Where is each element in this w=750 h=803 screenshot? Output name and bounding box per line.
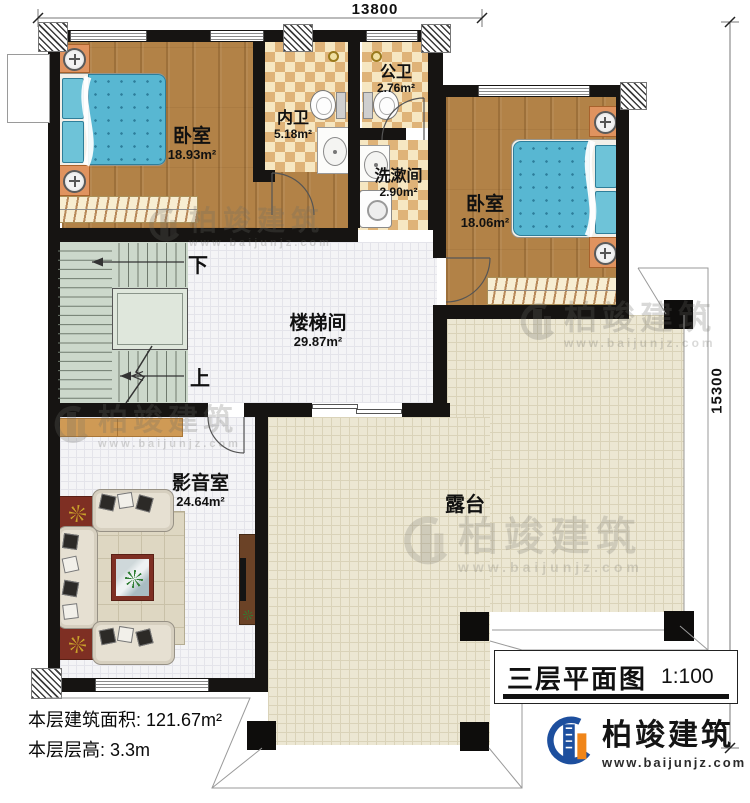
plan-scale: 1:100 [661, 665, 714, 689]
brand-website: www.baijunjz.com [602, 755, 746, 770]
room-label-terrace: 露台 [405, 494, 525, 517]
room-name: 卧室 [132, 126, 252, 148]
stair-down-arrow [92, 258, 103, 267]
plan-title: 三层平面图 [507, 659, 647, 696]
room-area: 2.76m² [355, 82, 437, 96]
dim-width-label: 13800 [340, 1, 410, 18]
brand-logo: 柏竣建筑 www.baijunjz.com [540, 714, 746, 776]
floor-plan-canvas: 卧室 18.93m² 内卫 5.18m² 公卫 2.76m² 洗漱间 2.90m… [0, 0, 750, 803]
stair-landing [113, 289, 188, 350]
floor-area-text: 本层建筑面积: 121.67m² [28, 706, 222, 732]
room-label-media-room: 影音室 24.64m² [143, 473, 258, 510]
room-area: 24.64m² [143, 495, 258, 510]
brand-name: 柏竣建筑 [602, 721, 746, 751]
room-name: 露台 [405, 494, 525, 517]
floor-height-text: 本层层高: 3.3m [28, 736, 150, 762]
room-label-public-bath: 公卫 2.76m² [355, 64, 437, 96]
dim-line-top [38, 9, 482, 27]
stair-up-arrow [120, 372, 131, 381]
room-area: 18.06m² [425, 216, 545, 231]
dim-height-label: 15300 [709, 356, 726, 426]
room-name: 洗漱间 [346, 168, 451, 186]
room-area: 29.87m² [258, 335, 378, 350]
room-label-stair-hall: 楼梯间 29.87m² [258, 313, 378, 350]
room-name: 公卫 [355, 64, 437, 82]
room-name: 内卫 [252, 110, 334, 128]
stair-down-label: 下 [188, 249, 208, 278]
room-name: 影音室 [143, 473, 258, 495]
title-underline [503, 694, 729, 699]
room-area: 5.18m² [252, 128, 334, 142]
room-label-bedroom-right: 卧室 18.06m² [425, 194, 545, 231]
blanket-fold [85, 77, 90, 165]
room-label-inner-bath: 内卫 5.18m² [252, 110, 334, 142]
blanket-fold [588, 141, 593, 236]
door-bedroom-right [446, 258, 490, 302]
room-name: 卧室 [425, 194, 545, 216]
brand-logo-icon [540, 714, 594, 776]
room-label-bedroom-left: 卧室 18.93m² [132, 126, 252, 163]
door-inner-bath [272, 173, 314, 215]
title-block: 三层平面图 1:100 [494, 650, 738, 704]
room-area: 18.93m² [132, 148, 252, 163]
room-name: 楼梯间 [258, 313, 378, 335]
stair-up-label: 上 [190, 362, 210, 391]
door-media-room [208, 417, 244, 453]
door-public-bath [382, 98, 424, 140]
eave-inner-lines [492, 315, 684, 630]
